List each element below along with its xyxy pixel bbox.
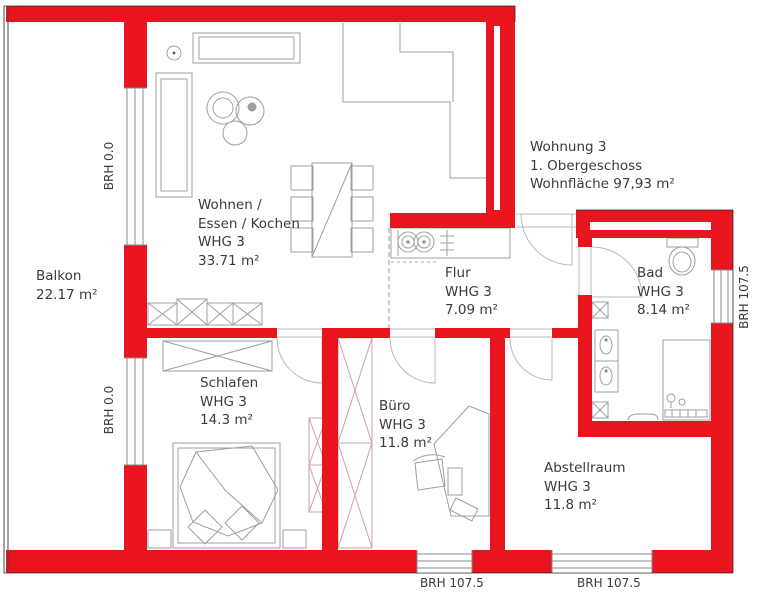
wall-insets — [494, 26, 711, 230]
room-area: 11.8 m² — [379, 434, 432, 453]
room-label-schlafen: Schlafen WHG 3 14.3 m² — [200, 374, 258, 430]
furniture-layer — [148, 23, 710, 548]
vent-box-top — [592, 302, 608, 318]
room-label-wohnen: Wohnen / Essen / Kochen WHG 3 33.71 m² — [198, 196, 300, 270]
room-name: Schlafen — [200, 374, 258, 393]
sill-label-left-bottom: BRH 0.0 — [102, 365, 116, 455]
total-area: Wohnfläche 97,93 m² — [530, 175, 675, 194]
room-label-flur: Flur WHG 3 7.09 m² — [445, 264, 498, 320]
wall-east-upper — [711, 238, 733, 270]
room-name: Essen / Kochen — [198, 215, 300, 234]
sill-label-bottom-left: BRH 107.5 — [420, 576, 484, 590]
wall-east-lower — [711, 323, 733, 573]
room-name: Abstellraum — [544, 459, 625, 478]
sofa — [156, 73, 192, 197]
wall-bottom-left — [6, 550, 417, 573]
apartment-name: Wohnung 3 — [530, 138, 675, 157]
door-arc-abstellraum — [510, 338, 552, 380]
inset-living-east — [494, 26, 500, 210]
wall-living-east — [486, 22, 515, 213]
wall-schlafen-buero — [322, 338, 338, 550]
closet-buero — [338, 338, 372, 548]
door-thresholds — [277, 214, 591, 337]
balcony-railing — [4, 6, 8, 573]
room-area: 11.8 m² — [544, 496, 625, 515]
wall-rooms-a — [147, 328, 277, 338]
door-arc-buero — [390, 338, 435, 383]
wall-bottom-right — [652, 550, 733, 573]
room-name: Balkon — [36, 267, 98, 286]
wall-rooms-d — [552, 328, 578, 338]
wall-bad-left-pier — [578, 238, 592, 247]
room-unit: WHG 3 — [445, 283, 498, 302]
room-name: Bad — [637, 264, 690, 283]
room-area: 8.14 m² — [637, 301, 690, 320]
room-area: 33.71 m² — [198, 252, 300, 271]
lowboard-x — [148, 299, 262, 325]
window-bottom-abstell — [552, 550, 652, 573]
floor-plan: Balkon 22.17 m² Wohnen / Essen / Kochen … — [0, 0, 758, 600]
door-arc-bad — [592, 247, 642, 297]
wall-balcony-b — [124, 245, 147, 358]
window-bottom-buero — [417, 550, 472, 573]
wall-bottom-mid — [472, 550, 552, 573]
room-area: 14.3 m² — [200, 411, 258, 430]
room-unit: WHG 3 — [200, 393, 258, 412]
wall-rooms-b — [322, 328, 390, 338]
coffee-tables — [207, 92, 264, 145]
inset-bad-top — [590, 222, 711, 230]
room-label-bad: Bad WHG 3 8.14 m² — [637, 264, 690, 320]
sideboard-top — [193, 33, 300, 63]
door-arc-entry — [521, 214, 572, 265]
wardrobe-schlafen — [163, 341, 272, 371]
wall-balcony-c — [124, 465, 147, 550]
room-area: 7.09 m² — [445, 301, 498, 320]
wall-buero-abstell — [490, 338, 505, 550]
door-arc-schlafen — [277, 338, 322, 383]
room-label-buero: Büro WHG 3 11.8 m² — [379, 397, 432, 453]
room-unit: WHG 3 — [637, 283, 690, 302]
wall-flur-top — [390, 213, 515, 228]
kitchen-counter — [343, 23, 486, 178]
wall-top — [6, 6, 515, 22]
washbasins — [595, 330, 618, 392]
room-unit: WHG 3 — [379, 416, 432, 435]
sill-label-bottom-right: BRH 107.5 — [577, 576, 641, 590]
room-area: 22.17 m² — [36, 286, 98, 305]
window-east — [711, 270, 733, 323]
room-name: Büro — [379, 397, 432, 416]
title-block: Wohnung 3 1. Obergeschoss Wohnfläche 97,… — [530, 138, 675, 194]
room-label-abstellraum: Abstellraum WHG 3 11.8 m² — [544, 459, 625, 515]
vent-box-bottom — [592, 402, 608, 418]
room-unit: WHG 3 — [198, 233, 300, 252]
wall-bad-bottom — [578, 421, 733, 437]
ceiling-detector-icon — [167, 46, 181, 60]
kitchenette — [391, 228, 510, 262]
room-unit: WHG 3 — [544, 478, 625, 497]
bath-mat — [628, 414, 658, 420]
room-name: Flur — [445, 264, 498, 283]
shower — [663, 340, 710, 420]
wall-rooms-c — [435, 328, 510, 338]
bed — [148, 443, 306, 548]
sill-label-right: BRH 107.5 — [737, 252, 751, 342]
wall-balcony-a — [124, 22, 147, 88]
window-balcony-top — [124, 88, 147, 245]
window-balcony-bottom — [124, 358, 147, 465]
wall-bad-left — [578, 295, 592, 437]
dining-set — [291, 163, 373, 257]
floor-name: 1. Obergeschoss — [530, 157, 675, 176]
room-label-balkon: Balkon 22.17 m² — [36, 267, 98, 304]
sill-label-left-top: BRH 0.0 — [102, 121, 116, 211]
room-name: Wohnen / — [198, 196, 300, 215]
